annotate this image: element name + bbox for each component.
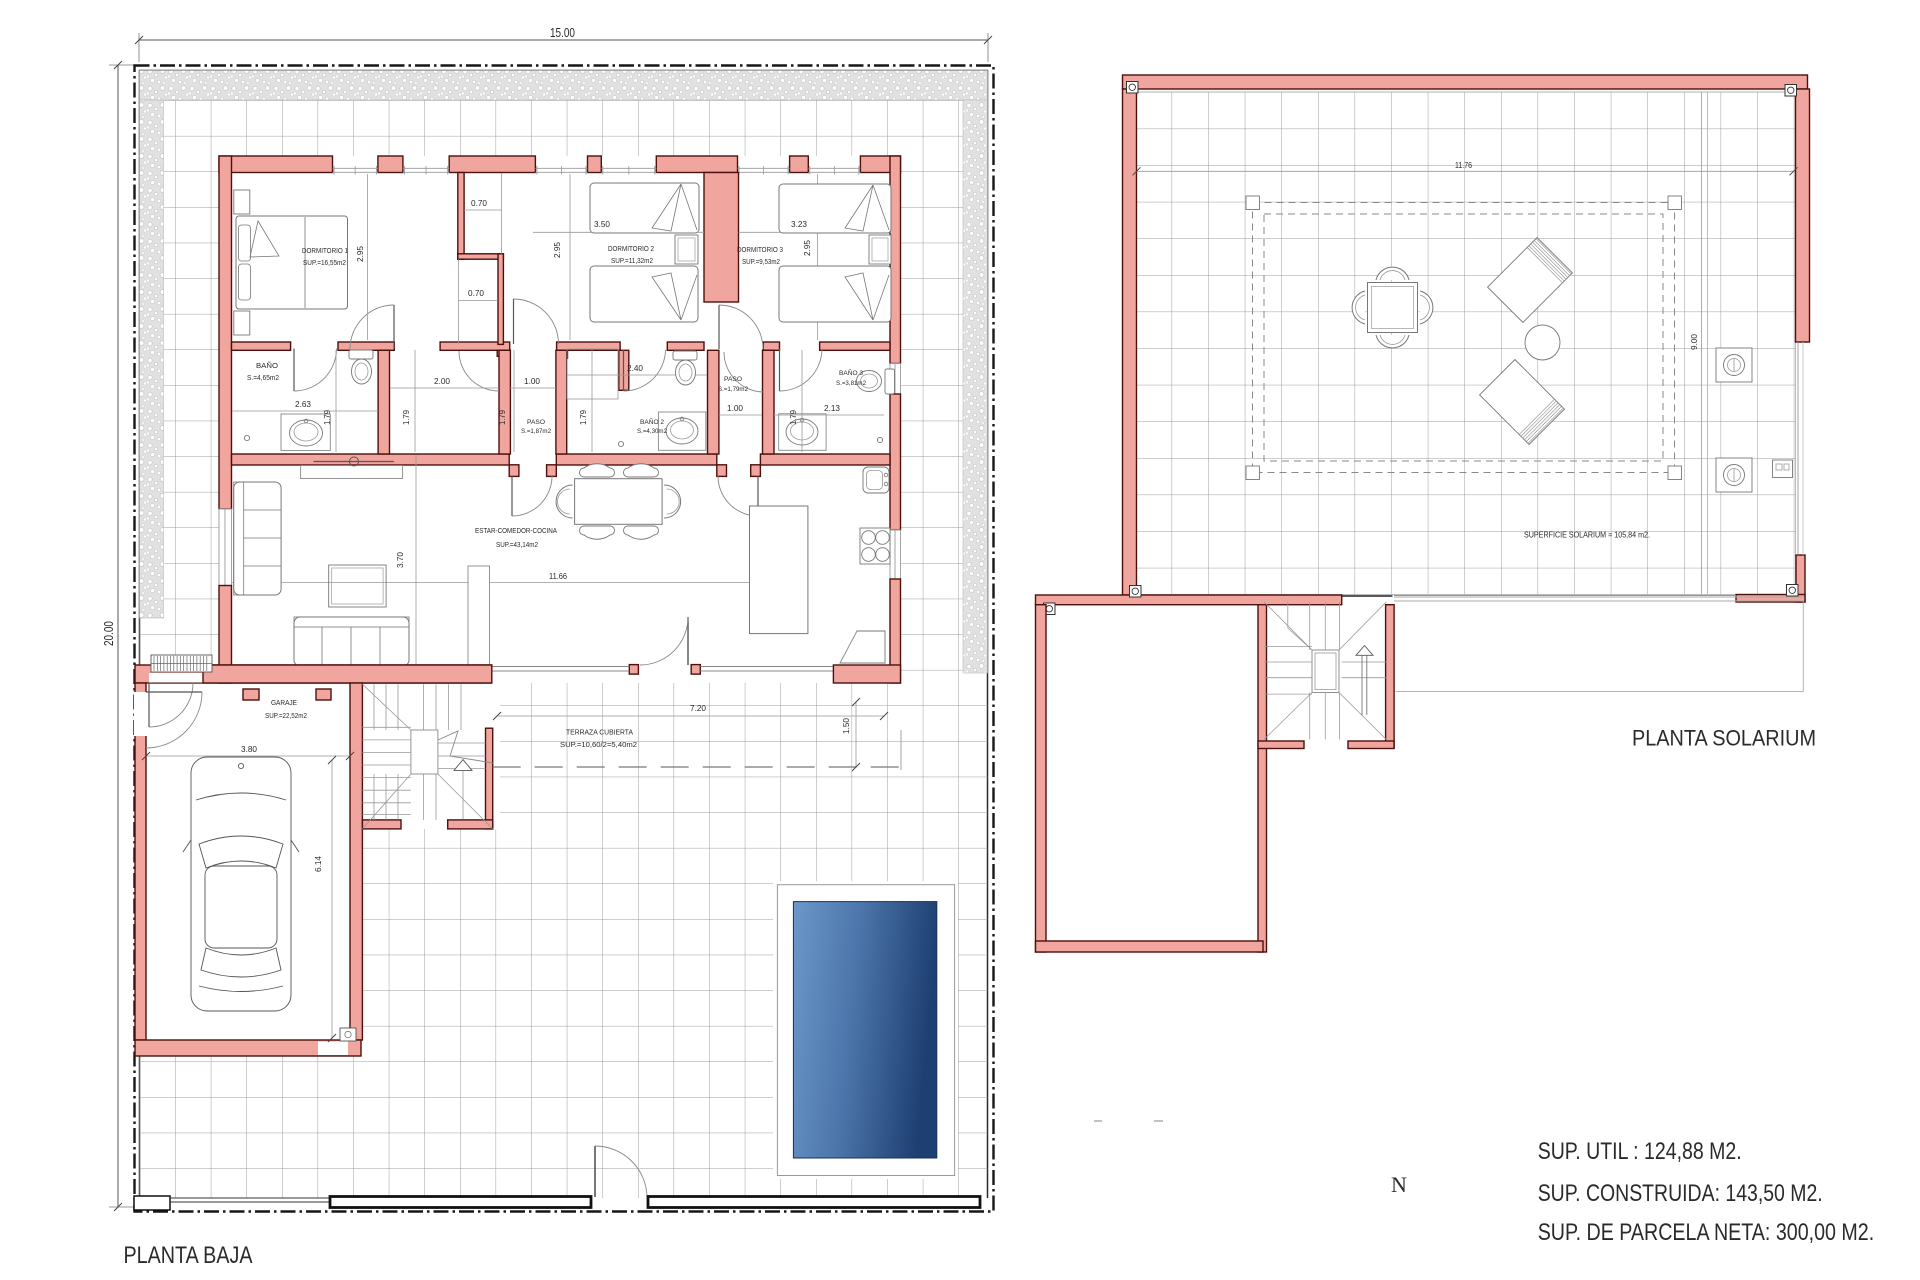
svg-text:3.70: 3.70 [396, 551, 405, 568]
svg-text:3.50: 3.50 [594, 220, 611, 229]
svg-text:2.95: 2.95 [356, 245, 365, 262]
svg-text:2.40: 2.40 [627, 364, 644, 373]
svg-text:2.63: 2.63 [295, 400, 312, 409]
svg-text:7.20: 7.20 [690, 704, 707, 713]
svg-text:TERRAZA CUBIERTA: TERRAZA CUBIERTA [566, 728, 633, 737]
svg-text:S.=1,87m2: S.=1,87m2 [521, 428, 551, 435]
svg-text:6.14: 6.14 [314, 855, 323, 872]
svg-text:S.=4,65m2: S.=4,65m2 [247, 375, 279, 382]
svg-text:15.00: 15.00 [550, 25, 575, 40]
svg-text:SUP.=22,52m2: SUP.=22,52m2 [265, 713, 307, 720]
svg-text:SUPERFICIE SOLARIUM = 105,84 m: SUPERFICIE SOLARIUM = 105,84 m2. [1524, 531, 1650, 540]
svg-text:BAÑO 2: BAÑO 2 [640, 417, 664, 426]
svg-text:2.95: 2.95 [803, 239, 812, 256]
svg-text:1.00: 1.00 [524, 377, 541, 386]
svg-text:9.00: 9.00 [1690, 333, 1699, 350]
svg-text:S.=4,30m2: S.=4,30m2 [637, 428, 667, 435]
svg-text:GARAJE: GARAJE [271, 698, 297, 707]
svg-text:N: N [1391, 1172, 1407, 1197]
svg-text:PASO: PASO [724, 376, 742, 383]
svg-text:3.23: 3.23 [791, 220, 808, 229]
svg-text:SUP.=9,53m2: SUP.=9,53m2 [742, 259, 780, 266]
svg-text:SUP. DE PARCELA NETA: 300,00 M: SUP. DE PARCELA NETA: 300,00 M2. [1538, 1219, 1875, 1246]
svg-text:1.79: 1.79 [402, 409, 411, 425]
svg-text:PLANTA BAJA: PLANTA BAJA [124, 1242, 253, 1269]
svg-text:S.=3,81m2: S.=3,81m2 [836, 380, 866, 387]
svg-text:20.00: 20.00 [101, 621, 116, 646]
svg-text:1.79: 1.79 [579, 409, 588, 425]
svg-text:1.79: 1.79 [789, 409, 798, 425]
svg-text:SUP.=43,14m2: SUP.=43,14m2 [496, 542, 538, 549]
svg-text:11.66: 11.66 [549, 572, 567, 581]
svg-text:1.79: 1.79 [498, 409, 507, 425]
svg-text:2.00: 2.00 [434, 377, 451, 386]
svg-text:SUP. UTIL : 124,88 M2.: SUP. UTIL : 124,88 M2. [1538, 1138, 1742, 1165]
svg-text:DORMITORIO 1: DORMITORIO 1 [302, 246, 348, 255]
svg-text:2.95: 2.95 [553, 241, 562, 258]
svg-text:PASO: PASO [527, 419, 545, 426]
svg-text:PLANTA SOLARIUM: PLANTA SOLARIUM [1632, 726, 1816, 751]
svg-text:ESTAR-COMEDOR-COCINA: ESTAR-COMEDOR-COCINA [475, 526, 558, 535]
svg-text:3.80: 3.80 [241, 745, 258, 754]
svg-text:BAÑO: BAÑO [256, 361, 279, 370]
svg-text:1.50: 1.50 [842, 717, 851, 734]
svg-text:DORMITORIO 3: DORMITORIO 3 [737, 245, 783, 254]
svg-text:SUP.=11,32m2: SUP.=11,32m2 [611, 258, 653, 265]
svg-text:0.70: 0.70 [471, 199, 488, 208]
svg-text:SUP.=10,60/2=5,40m2: SUP.=10,60/2=5,40m2 [560, 742, 637, 749]
svg-text:2.13: 2.13 [824, 404, 841, 413]
svg-text:SUP. CONSTRUIDA: 143,50 M2.: SUP. CONSTRUIDA: 143,50 M2. [1538, 1180, 1823, 1207]
svg-text:DORMITORIO 2: DORMITORIO 2 [608, 244, 654, 253]
svg-text:11.76: 11.76 [1455, 161, 1472, 170]
svg-text:1.79: 1.79 [323, 409, 332, 425]
svg-text:0.70: 0.70 [468, 289, 485, 298]
svg-text:SUP.=16,55m2: SUP.=16,55m2 [303, 260, 346, 267]
svg-text:S.=1,79m2: S.=1,79m2 [718, 386, 748, 393]
svg-text:1.00: 1.00 [727, 404, 744, 413]
svg-text:BAÑO 3: BAÑO 3 [839, 368, 863, 377]
